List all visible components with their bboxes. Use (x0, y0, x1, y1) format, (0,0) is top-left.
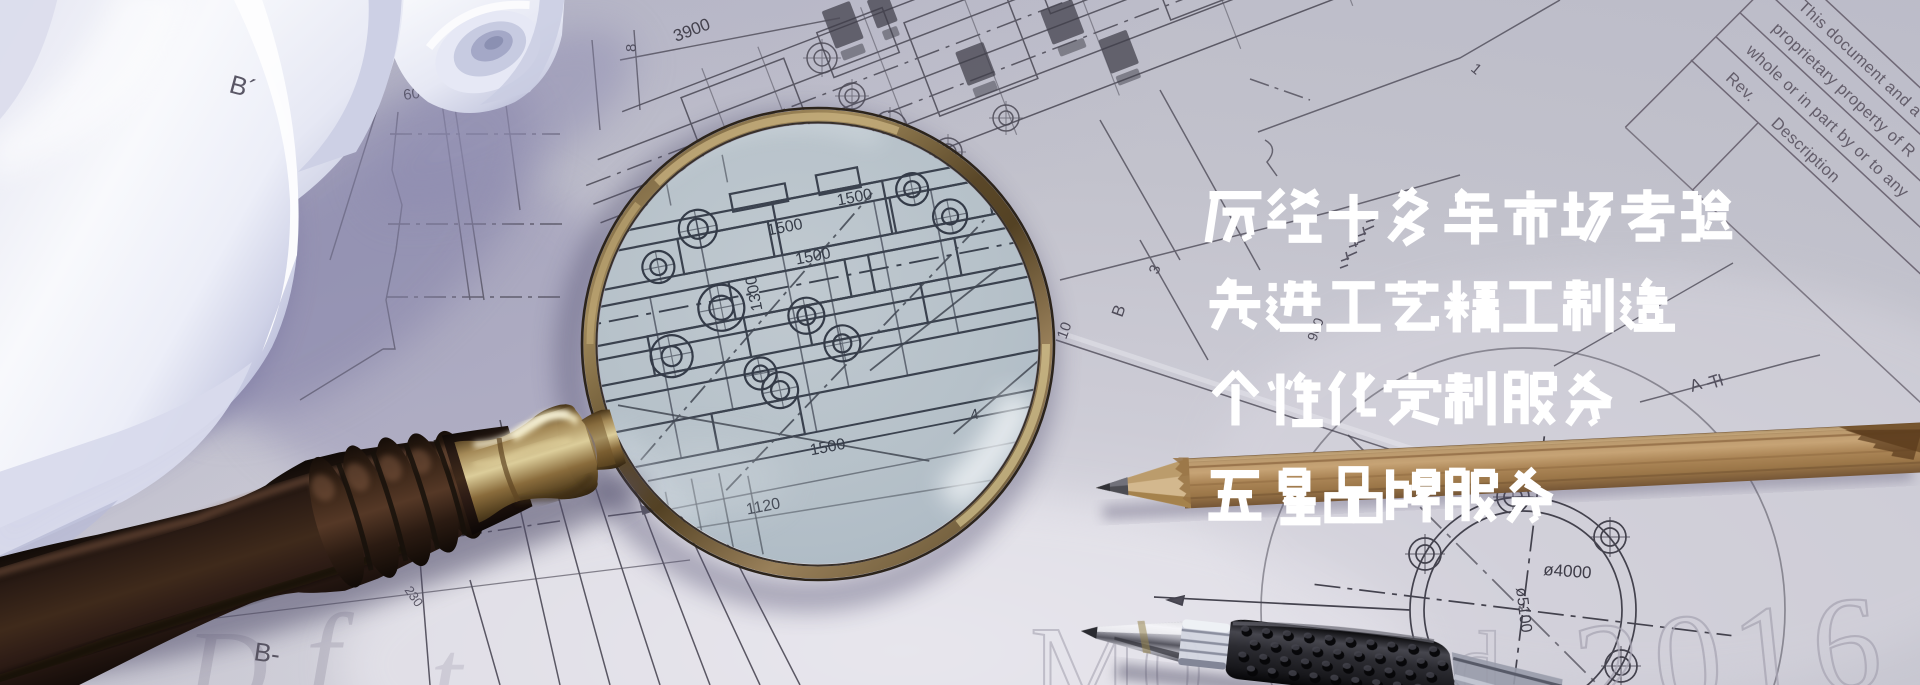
svg-text:ø4000: ø4000 (1543, 560, 1592, 582)
svg-text:B-: B- (252, 636, 282, 669)
svg-text:t: t (430, 616, 465, 685)
